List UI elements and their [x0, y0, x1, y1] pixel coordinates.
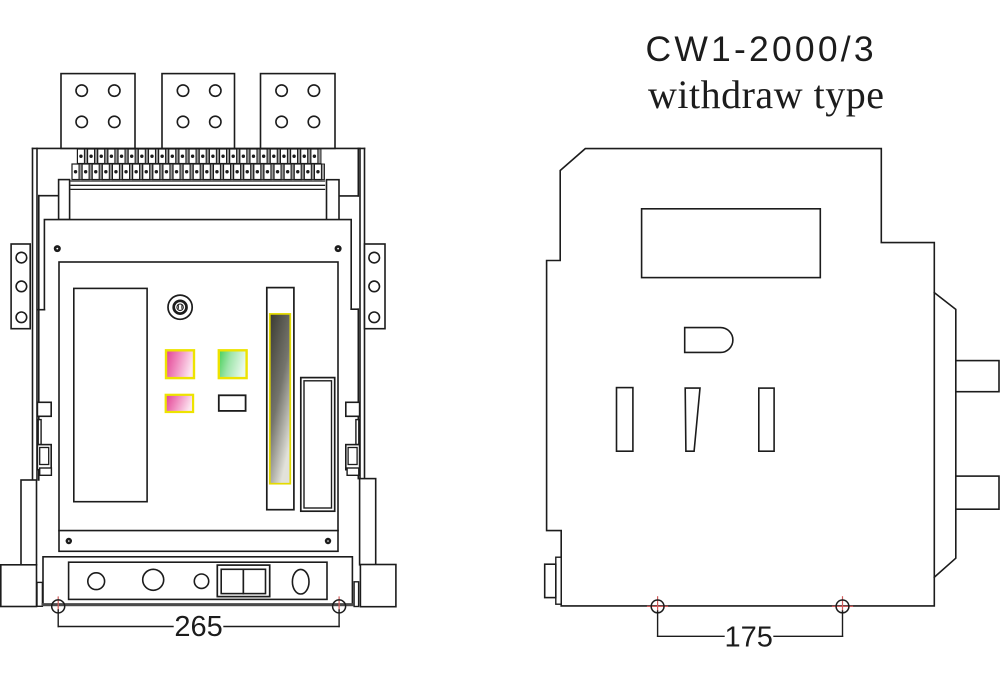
svg-text:265: 265 — [174, 611, 222, 643]
svg-text:175: 175 — [725, 621, 773, 653]
svg-text:withdraw type: withdraw type — [648, 72, 884, 117]
svg-text:CW1-2000/3: CW1-2000/3 — [646, 29, 877, 69]
